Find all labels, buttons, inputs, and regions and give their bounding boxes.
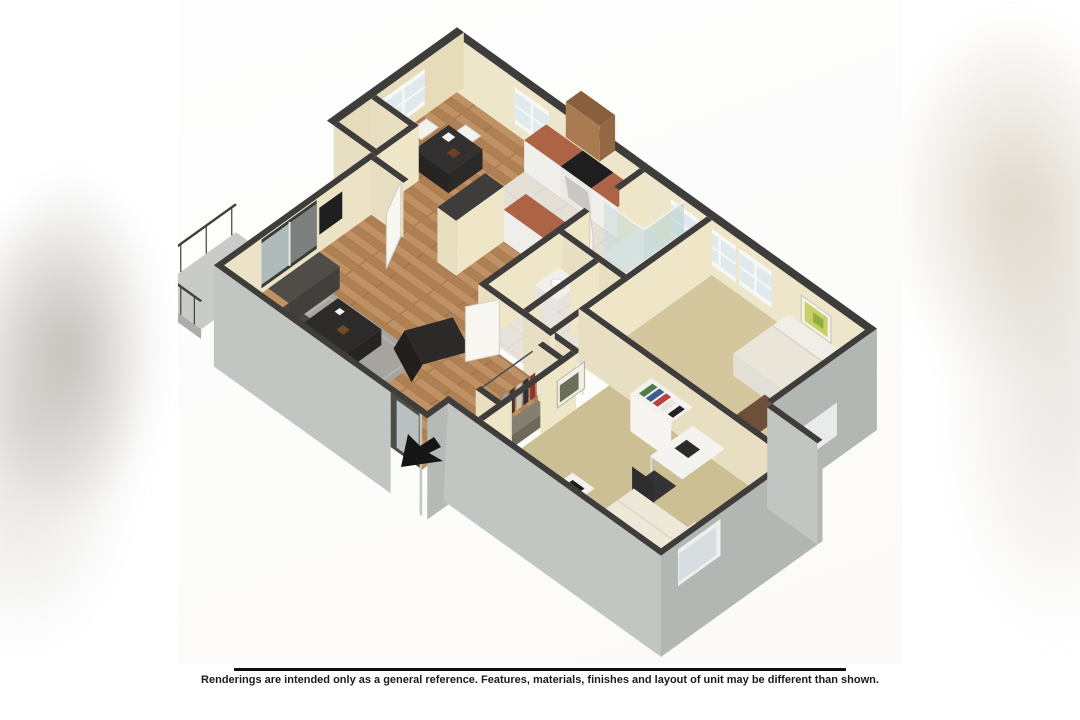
disclaimer-text: Renderings are intended only as a genera… xyxy=(178,674,902,686)
blurred-edge-right xyxy=(888,0,1080,720)
blurred-edge-left xyxy=(0,0,180,720)
footer-divider xyxy=(234,668,846,671)
floor-plan-render-area xyxy=(178,0,902,664)
isometric-scene xyxy=(178,15,902,664)
floor-plan-svg xyxy=(178,0,902,664)
footer: Renderings are intended only as a genera… xyxy=(178,664,902,686)
floor-plan-marketing-image: Renderings are intended only as a genera… xyxy=(0,0,1080,720)
